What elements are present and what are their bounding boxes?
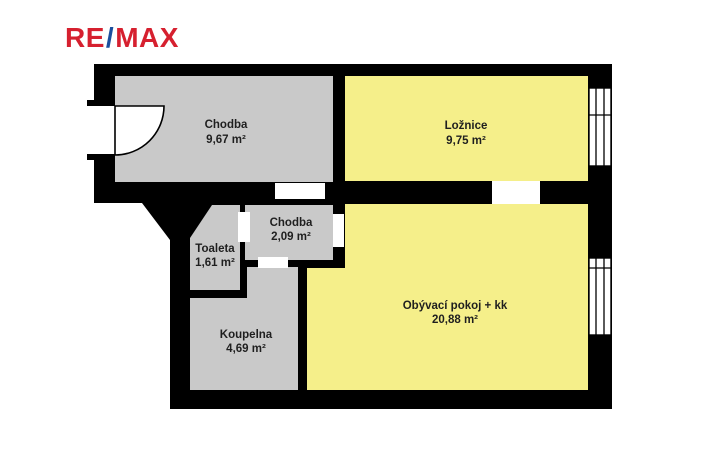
room-name: Toaleta — [195, 243, 235, 255]
room-name: Ložnice — [445, 120, 488, 132]
door-opening-toaleta — [238, 212, 250, 242]
room-area: 4,69 m² — [226, 343, 266, 355]
room-area: 9,67 m² — [206, 134, 246, 146]
entrance-door-opening — [94, 106, 115, 154]
room-area: 20,88 m² — [432, 314, 478, 326]
room-obyvaci-pokoj-shape — [307, 204, 588, 390]
door-opening-living-to-inner-hall — [333, 214, 344, 247]
room-obyvaci-pokoj: Obývací pokoj + kk 20,88 m² — [307, 204, 588, 390]
room-area: 1,61 m² — [195, 257, 235, 269]
window-loznice-icon — [589, 88, 611, 166]
window-living-icon — [589, 258, 611, 335]
door-frame-tick-bottom — [87, 154, 95, 160]
floor-plan: Chodba 9,67 m² Ložnice 9,75 m² Obývací p… — [0, 0, 702, 468]
room-chodba-inner: Chodba 2,09 m² — [245, 205, 333, 260]
room-loznice: Ložnice 9,75 m² — [345, 76, 588, 181]
room-name: Koupelna — [220, 329, 273, 341]
floorplan-page: RE/MAX Chodba 9,67 m² Ložnice 9,75 m² Ob… — [0, 0, 702, 468]
door-opening-loznice-to-living — [492, 181, 540, 204]
door-frame-tick-top — [87, 100, 95, 106]
room-area: 9,75 m² — [446, 135, 486, 147]
room-name: Chodba — [270, 217, 313, 229]
room-name: Chodba — [205, 119, 248, 131]
room-area: 2,09 m² — [271, 231, 311, 243]
room-name: Obývací pokoj + kk — [403, 300, 508, 312]
door-opening-koupelna — [258, 257, 288, 268]
door-opening-entry-to-inner-hall — [275, 183, 325, 199]
